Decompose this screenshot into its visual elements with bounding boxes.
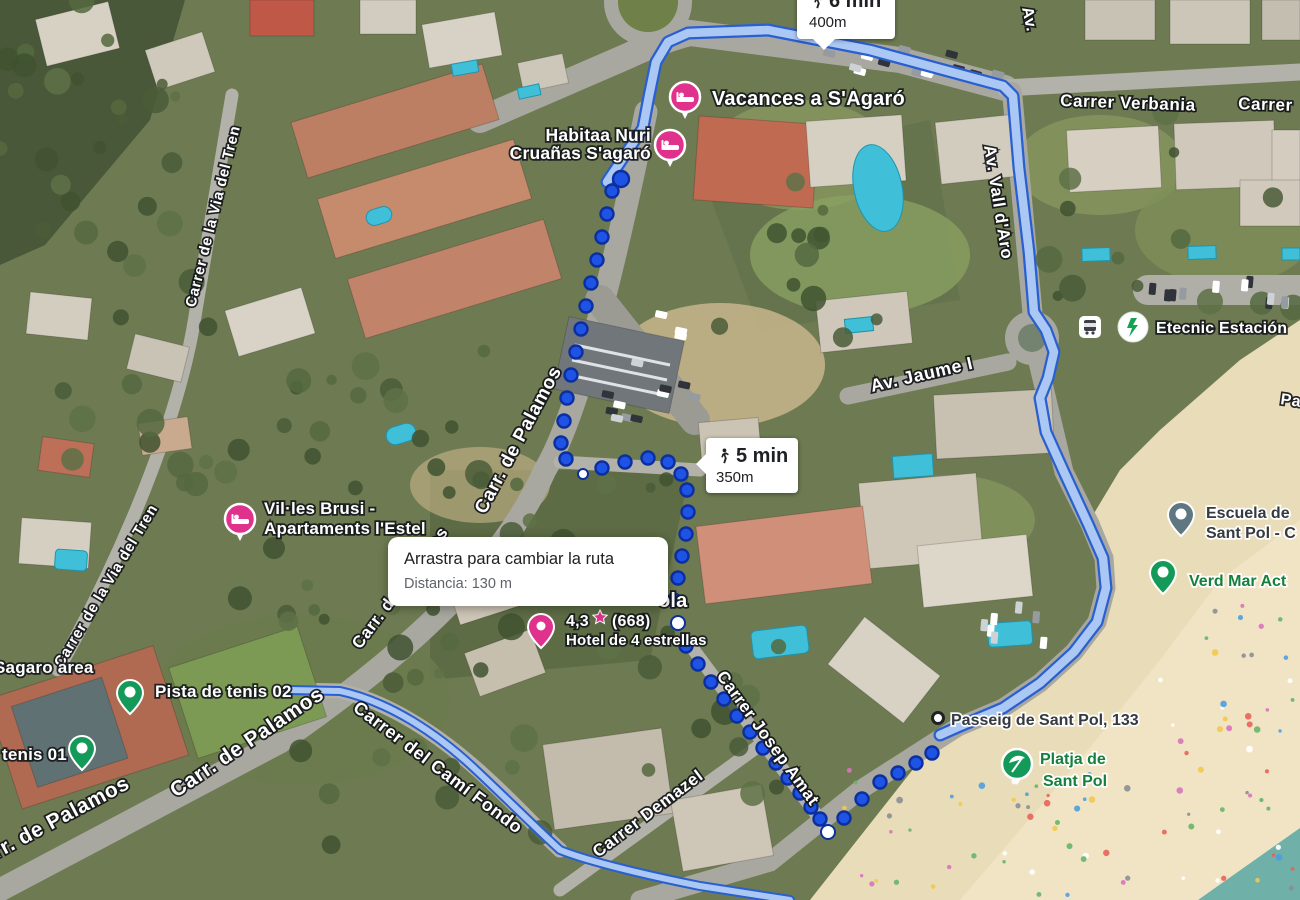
beach-umbrella-dot <box>1002 860 1006 864</box>
tree <box>767 223 787 243</box>
poi-label[interactable]: Sant Pol <box>1043 773 1107 790</box>
tree <box>93 141 106 154</box>
tree <box>1169 147 1179 157</box>
beach-umbrella-dot <box>1259 798 1263 802</box>
tree <box>55 382 72 399</box>
tree <box>473 662 488 677</box>
tree <box>304 448 321 465</box>
beach-umbrella-dot <box>1213 609 1218 614</box>
beach-umbrella-dot <box>896 797 903 804</box>
tree <box>871 313 883 325</box>
route-walk-dot[interactable] <box>680 528 693 541</box>
route-walk-dot[interactable] <box>892 767 905 780</box>
beach-umbrella-dot <box>1027 814 1033 820</box>
route-walk-dot[interactable] <box>601 208 614 221</box>
beach-umbrella-dot <box>931 884 936 889</box>
parked-car <box>1267 293 1275 306</box>
tree <box>352 352 380 380</box>
tree <box>176 474 194 492</box>
tree <box>383 388 408 413</box>
beach-umbrella-dot <box>1081 856 1087 862</box>
beach-umbrella-dot <box>1181 876 1185 880</box>
beach-umbrella-dot <box>1103 850 1109 856</box>
tree <box>69 405 96 432</box>
parked-car <box>980 619 988 632</box>
route-walk-dot[interactable] <box>596 231 609 244</box>
tree <box>310 421 331 442</box>
tree <box>101 34 114 47</box>
beach-umbrella-dot <box>1248 793 1252 797</box>
tree <box>740 781 765 806</box>
parked-car <box>1179 287 1187 300</box>
beach-umbrella-dot <box>869 881 874 886</box>
route-walk-dot[interactable] <box>676 550 689 563</box>
tree <box>137 409 165 437</box>
route-walk-dot[interactable] <box>692 658 705 671</box>
route-walk-dot[interactable] <box>838 812 851 825</box>
tree <box>167 452 193 478</box>
tree <box>289 739 312 762</box>
tree <box>71 72 84 85</box>
beach-umbrella-dot <box>1220 701 1227 708</box>
beach-umbrella-dot <box>1171 723 1174 726</box>
beach-umbrella-dot <box>847 768 852 773</box>
beach-umbrella-dot <box>1238 615 1243 620</box>
beach-umbrella-dot <box>1187 813 1190 816</box>
tree <box>117 114 127 124</box>
beach-umbrella-dot <box>1074 805 1080 811</box>
poi-label: Sagaro area <box>0 658 94 677</box>
beach-umbrella-dot <box>1221 876 1226 881</box>
hotel-category: Hotel de 4 estrellas <box>566 632 707 649</box>
beach-umbrella-dot <box>1121 880 1126 885</box>
route-walk-dot[interactable] <box>642 452 655 465</box>
tree <box>74 220 98 244</box>
tree <box>478 345 490 357</box>
beach-umbrella-dot <box>1124 785 1131 792</box>
beach-umbrella-dot <box>947 865 951 869</box>
poi-label[interactable]: Escuela de <box>1206 505 1290 522</box>
parked-car <box>1040 637 1048 650</box>
beach-umbrella-dot <box>1288 678 1293 683</box>
tree <box>505 760 520 775</box>
route-walk-dot[interactable] <box>558 415 571 428</box>
tree <box>787 278 801 292</box>
parked-car <box>1148 283 1156 296</box>
tree <box>597 474 617 494</box>
tree <box>301 579 313 591</box>
tree <box>170 91 180 101</box>
beach-umbrella-dot <box>1220 807 1225 812</box>
tree <box>107 241 128 262</box>
poi-label[interactable]: Sant Pol - C <box>1206 525 1296 542</box>
poi-label[interactable]: tenis 01 <box>2 745 67 764</box>
tree <box>319 783 340 804</box>
parked-car <box>1015 601 1023 614</box>
hotel-rating: 4,3 <box>566 613 589 630</box>
tree <box>771 639 786 654</box>
tree <box>8 83 24 99</box>
tree <box>372 748 390 766</box>
tree <box>691 718 711 738</box>
route-walk-dot[interactable] <box>681 484 694 497</box>
beach-umbrella-dot <box>1003 851 1007 855</box>
route-walk-dot[interactable] <box>561 392 574 405</box>
route-walk-dot[interactable] <box>580 300 593 313</box>
route-walk-dot[interactable] <box>682 506 695 519</box>
drag-route-hint: Arrastra para cambiar la ruta Distancia:… <box>388 537 668 606</box>
tree <box>818 205 829 216</box>
poi-label[interactable]: Habitaa Nuri <box>546 125 651 145</box>
beach-umbrella-dot <box>1241 653 1245 657</box>
beach-umbrella-dot <box>1012 798 1016 802</box>
tree <box>122 374 142 394</box>
tree <box>214 460 237 483</box>
tree <box>1112 252 1125 265</box>
poi-label[interactable]: Vil·les Brusi - <box>264 499 375 518</box>
route-walk-dot[interactable] <box>874 776 887 789</box>
beach-umbrella-dot <box>874 879 878 883</box>
beach-umbrella-dot <box>1266 807 1270 811</box>
parked-car <box>1281 296 1289 309</box>
tree <box>199 455 213 469</box>
beach-umbrella-dot <box>1216 829 1221 834</box>
route-drag-handle[interactable] <box>671 616 685 630</box>
satellite-map: Carrer Verbania Carrer Av. Vall d'Aro Av… <box>0 0 1300 900</box>
beach-umbrella-dot <box>1178 738 1184 744</box>
tree <box>1059 168 1081 190</box>
beach-umbrella-dot <box>1212 649 1219 656</box>
drag-hint-distance: Distancia: 130 m <box>404 576 652 592</box>
poi-label[interactable]: Pista de tenis 02 <box>155 682 292 701</box>
tree <box>263 537 285 559</box>
beach-umbrella-dot <box>1083 797 1087 801</box>
street-label: Pa <box>1279 391 1300 411</box>
beach-umbrella-dot <box>894 880 899 885</box>
tree <box>35 148 59 172</box>
walking-icon <box>809 0 824 10</box>
ev-charging-icon[interactable] <box>1118 312 1148 342</box>
tree <box>510 724 538 752</box>
route-distance: 350m <box>716 469 788 486</box>
tree <box>199 318 218 337</box>
route-walk-dot[interactable] <box>926 747 939 760</box>
beach-umbrella-dot <box>1052 826 1057 831</box>
tree <box>642 763 656 777</box>
tree <box>427 458 445 476</box>
poi-label[interactable]: Vacances a S'Agaró <box>712 88 905 110</box>
route-walk-dot[interactable] <box>565 369 578 382</box>
beach-umbrella-dot <box>1259 624 1264 629</box>
route-walk-dot[interactable] <box>585 277 598 290</box>
tree <box>833 327 853 347</box>
beach-umbrella-dot <box>1034 784 1038 788</box>
tree <box>1059 275 1086 302</box>
beach-umbrella-dot <box>1025 792 1029 796</box>
route-time-bubble-alt[interactable]: 5 min 350m <box>706 438 798 493</box>
tree <box>412 430 430 448</box>
tree <box>61 448 84 471</box>
parked-car <box>990 631 998 644</box>
tree <box>1060 201 1076 217</box>
tree <box>659 472 673 486</box>
beach-umbrella-dot <box>860 874 863 877</box>
beach-umbrella-dot <box>1265 769 1269 773</box>
tree <box>61 192 80 211</box>
beach-umbrella-dot <box>1198 767 1204 773</box>
beach-umbrella-dot <box>1226 725 1232 731</box>
tree <box>161 152 182 173</box>
drag-hint-title: Arrastra para cambiar la ruta <box>404 550 652 569</box>
route-walk-dot[interactable] <box>856 793 869 806</box>
beach-umbrella-dot <box>979 782 986 789</box>
street-label: Carrer <box>1238 94 1293 115</box>
beach-umbrella-dot <box>1158 678 1163 683</box>
route-distance: 400m <box>809 14 885 31</box>
route-walk-dot[interactable] <box>591 254 604 267</box>
tree <box>286 368 311 393</box>
tree <box>322 835 341 854</box>
parked-car <box>1241 279 1249 292</box>
tree <box>326 375 336 385</box>
route-walk-dot[interactable] <box>672 572 685 585</box>
tree <box>795 243 819 267</box>
route-time-bubble-top[interactable]: 6 min 400m <box>797 0 895 39</box>
beach-umbrella-dot <box>1276 854 1283 861</box>
beach-umbrella-dot <box>1276 845 1281 850</box>
beach-umbrella-dot <box>1205 636 1209 640</box>
tree <box>157 79 168 90</box>
poi-label[interactable]: Platja de <box>1040 751 1106 768</box>
tree <box>383 672 404 693</box>
route-walk-dot[interactable] <box>662 456 675 469</box>
beach-umbrella-dot <box>958 802 962 806</box>
beach-umbrella-dot <box>1245 791 1249 795</box>
beach-umbrella-dot <box>1272 853 1276 857</box>
tree <box>279 611 299 631</box>
parked-car <box>1212 281 1220 294</box>
route-duration: 5 min <box>736 445 788 468</box>
tree <box>407 669 424 686</box>
route-drag-handle[interactable] <box>578 469 588 479</box>
beach-umbrella-dot <box>1162 830 1167 835</box>
tree <box>12 53 36 77</box>
beach-umbrella-dot <box>1284 655 1289 660</box>
beach-umbrella-dot <box>1065 893 1069 897</box>
tree <box>445 420 458 433</box>
tree <box>142 87 169 114</box>
beach-umbrella-dot <box>1254 726 1261 733</box>
poi-label[interactable]: Apartaments l'Estel <box>264 519 426 538</box>
tree <box>523 513 538 528</box>
beach-umbrella-dot <box>1289 886 1294 891</box>
tree <box>1171 229 1191 249</box>
tree <box>434 668 445 679</box>
route-walk-dot[interactable] <box>619 456 632 469</box>
beach-umbrella-dot <box>1015 803 1020 808</box>
route-walk-dot[interactable] <box>675 468 688 481</box>
beach-umbrella-dot <box>1125 876 1130 881</box>
tree <box>711 318 728 335</box>
walking-icon <box>716 448 731 465</box>
beach-umbrella-dot <box>1055 820 1060 825</box>
tree <box>123 254 146 277</box>
beach-umbrella-dot <box>1247 721 1253 727</box>
tree <box>113 309 129 325</box>
beach-umbrella-dot <box>842 806 847 811</box>
bus-stop-icon[interactable] <box>1079 316 1101 338</box>
parked-car <box>990 613 998 626</box>
tree <box>498 613 525 640</box>
beach-umbrella-dot <box>971 853 976 858</box>
route-duration: 6 min <box>829 0 881 13</box>
tree <box>138 197 157 216</box>
tree <box>440 632 459 651</box>
tree <box>1036 246 1063 273</box>
beach-umbrella-dot <box>908 828 911 831</box>
beach-umbrella-dot <box>1037 892 1042 897</box>
route-walk-dot[interactable] <box>560 453 573 466</box>
route-walk-dot[interactable] <box>555 437 568 450</box>
beach-umbrella-dot <box>887 813 892 818</box>
beach-umbrella-dot <box>1029 869 1035 875</box>
beach-umbrella-dot <box>1249 653 1254 658</box>
tree <box>308 604 320 616</box>
tree <box>157 211 183 237</box>
tree <box>35 222 51 238</box>
beach-umbrella-dot <box>1044 800 1051 807</box>
tree <box>277 418 292 433</box>
tree <box>348 481 363 496</box>
beach-umbrella-dot <box>1188 823 1194 829</box>
tree <box>801 286 826 311</box>
beach-umbrella-dot <box>950 795 954 799</box>
tree <box>111 99 127 115</box>
route-walk-dot[interactable] <box>570 346 583 359</box>
poi-label[interactable]: Passeig de Sant Pol, 133 <box>951 712 1139 729</box>
route-walk-dot[interactable] <box>910 757 923 770</box>
beach-umbrella-dot <box>854 781 858 785</box>
tree <box>228 439 250 461</box>
tree <box>729 737 748 756</box>
beach-umbrella-dot <box>1184 751 1188 755</box>
beach-umbrella-dot <box>1278 617 1283 622</box>
tree <box>319 614 330 625</box>
beach-umbrella-dot <box>1291 698 1295 702</box>
hotel-reviews: (668) <box>612 613 650 630</box>
beach-umbrella-dot <box>1255 878 1260 883</box>
beach-umbrella-dot <box>1089 796 1096 803</box>
poi-label[interactable]: Verd Mar Act <box>1189 573 1287 590</box>
route-walk-dot[interactable] <box>596 462 609 475</box>
parked-car <box>1164 289 1172 302</box>
poi-label[interactable]: Cruañas S'agaró <box>510 143 651 163</box>
beach-umbrella-dot <box>1217 726 1223 732</box>
tree <box>51 175 71 195</box>
beach-umbrella-dot <box>1240 604 1244 608</box>
beach-umbrella-dot <box>1223 716 1228 721</box>
beach-umbrella-dot <box>1176 787 1183 794</box>
parked-car <box>1032 611 1040 624</box>
tree <box>350 387 366 403</box>
beach-umbrella-dot <box>1266 708 1270 712</box>
beach-umbrella-dot <box>1026 805 1030 809</box>
tree <box>1197 289 1223 315</box>
tree <box>443 486 456 499</box>
address-dot[interactable] <box>933 713 944 724</box>
tree <box>791 228 806 243</box>
beach-umbrella-dot <box>889 830 893 834</box>
beach-umbrella-dot <box>1278 729 1281 732</box>
tree <box>44 68 71 95</box>
route-walk-dot[interactable] <box>814 813 827 826</box>
beach-umbrella-dot <box>1246 746 1253 753</box>
poi-label[interactable]: Etecnic Estación <box>1156 320 1287 337</box>
tree <box>638 655 662 679</box>
beach-umbrella-dot <box>1245 713 1252 720</box>
map-canvas[interactable]: Carrer Verbania Carrer Av. Vall d'Aro Av… <box>0 0 1300 900</box>
tree <box>510 478 524 492</box>
route-walk-dot[interactable] <box>575 323 588 336</box>
beach-umbrella-dot <box>1215 878 1220 883</box>
tree <box>786 173 805 192</box>
route-walk-dot[interactable] <box>606 185 619 198</box>
route-drag-handle[interactable] <box>821 825 835 839</box>
tree <box>1263 187 1283 207</box>
beach-umbrella-dot <box>1291 867 1295 871</box>
tree <box>387 634 413 660</box>
beach-umbrella-dot <box>1067 843 1073 849</box>
tree <box>1132 280 1144 292</box>
tree <box>646 483 656 493</box>
beach-umbrella-dot <box>1046 794 1049 797</box>
tree <box>228 586 252 610</box>
